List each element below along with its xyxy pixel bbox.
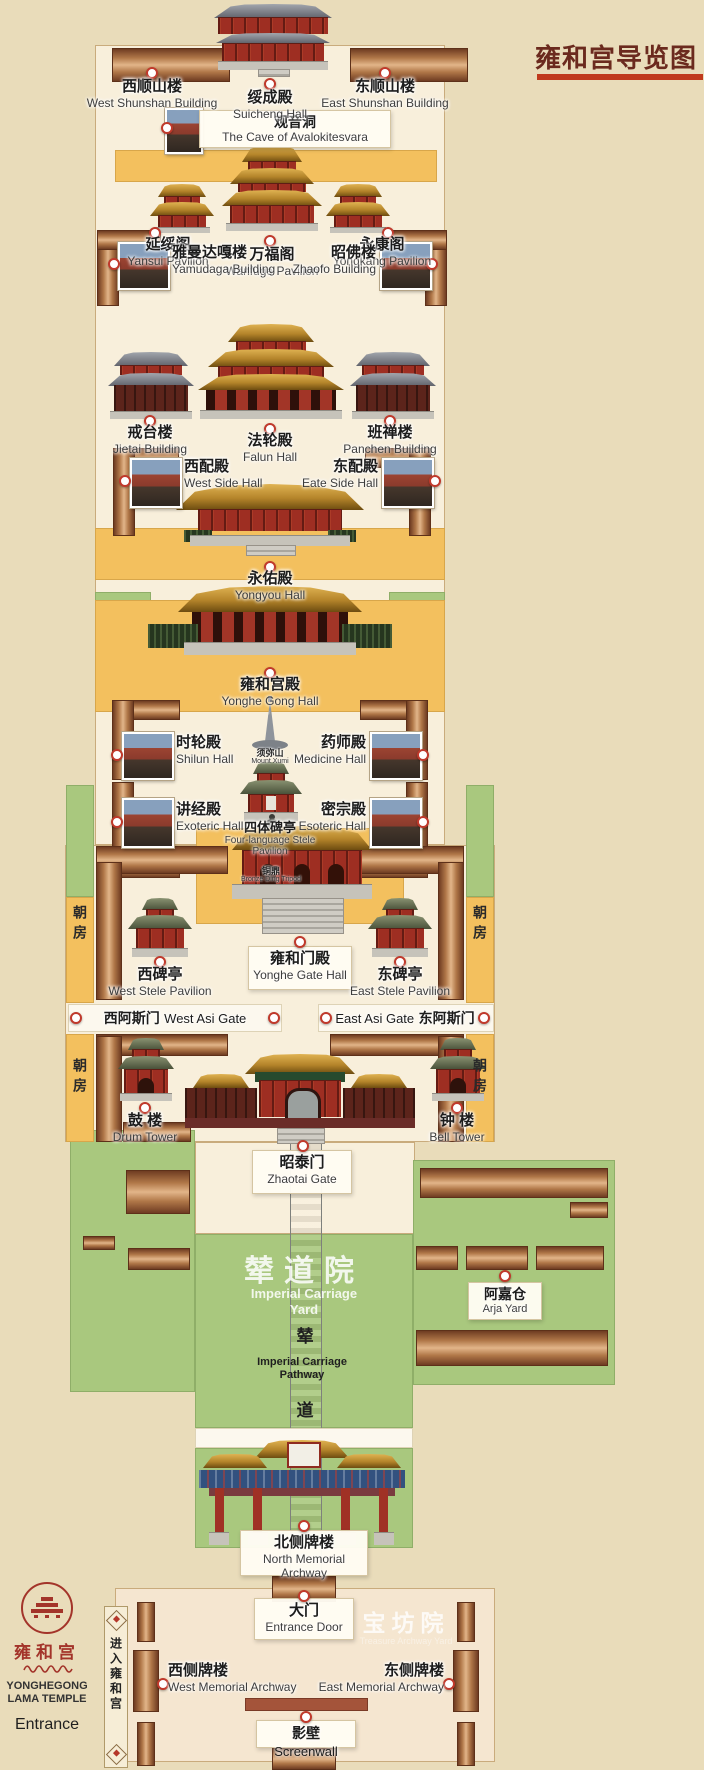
west-shunshan-roof — [112, 48, 230, 82]
location-marker — [443, 1678, 455, 1690]
north-archway-en: North Memorial Archway — [245, 1552, 363, 1580]
enter-banner-text: 进入雍和宫 — [108, 1637, 125, 1741]
label-east-stele: 东碑亭 East Stele Pavilion — [350, 966, 450, 998]
location-marker — [320, 1012, 332, 1024]
jietai-cn: 戒台楼 — [113, 424, 187, 442]
north-archway-label-box: 北侧牌楼 North Memorial Archway — [240, 1530, 368, 1576]
xumi-en: Mount Xumi — [251, 758, 288, 766]
yansui-pavilion-illustration — [150, 184, 214, 232]
screenwall-en: Screenwall — [274, 1744, 338, 1759]
location-marker — [298, 1520, 310, 1532]
east-side-cn: 东配殿 — [302, 458, 378, 476]
label-chaofang-se: 朝房 — [470, 1058, 490, 1098]
location-marker — [499, 1270, 511, 1282]
xumi-cn: 须弥山 — [251, 748, 288, 758]
label-west-stele: 西碑亭 West Stele Pavilion — [108, 966, 211, 998]
east-shunshan-en: East Shunshan Building — [321, 96, 448, 110]
yonghegong-en: Yonghe Gong Hall — [222, 694, 319, 708]
east-archway-pillar — [453, 1650, 479, 1712]
label-west-shunshan: 西顺山楼 West Shunshan Building — [87, 78, 218, 110]
lawn-strip-west — [66, 785, 94, 897]
label-suicheng: 绥成殿 Suicheng Hall — [233, 89, 307, 121]
drum-cn: 鼓 楼 — [113, 1112, 177, 1130]
yamudaga-cn: 雅曼达嘎楼 — [172, 244, 275, 262]
exoteric-hall-photo — [122, 798, 174, 848]
location-marker — [268, 1012, 280, 1024]
screenwall-cn: 影壁 — [292, 1725, 320, 1741]
yard-building-roof — [416, 1246, 458, 1270]
medicine-en: Medicine Hall — [294, 752, 366, 766]
tibetan-script-icon — [22, 1662, 74, 1674]
yongyou-en: Yongyou Hall — [235, 588, 305, 602]
location-marker — [119, 475, 131, 487]
bell-en: Bell Tower — [429, 1130, 484, 1144]
label-exoteric: 讲经殿 Exoteric Hall — [176, 801, 243, 833]
east-shunshan-roof — [350, 48, 468, 82]
east-shunshan-cn: 东顺山楼 — [321, 78, 448, 96]
carriage-yard-en2: Yard — [290, 1302, 318, 1317]
label-esoteric: 密宗殿 Esoteric Hall — [299, 801, 366, 833]
east-archway-pillar — [457, 1722, 475, 1766]
falun-hall-illustration — [198, 324, 344, 418]
arja-en: Arja Yard — [473, 1302, 537, 1316]
stele-pavilion-illustration — [240, 762, 302, 820]
east-archway-pillar — [457, 1602, 475, 1642]
west-stele-pavilion-illustration — [128, 898, 192, 958]
yard-building-roof — [126, 1170, 190, 1214]
yard-building-roof — [416, 1330, 608, 1366]
label-yamudaga: 雅曼达嘎楼 Yamudaga Building — [172, 244, 275, 276]
location-marker — [417, 749, 429, 761]
label-east-side-hall: 东配殿 Eate Side Hall — [302, 458, 378, 490]
west-shunshan-en: West Shunshan Building — [87, 96, 218, 110]
east-side-hall-photo — [382, 458, 434, 508]
temple-silhouette-icon — [28, 1595, 66, 1621]
west-asi-cn: 西阿斯门 — [104, 1010, 160, 1026]
temple-seal-icon — [21, 1582, 73, 1634]
ding-cn: 铜鼎 — [241, 866, 301, 876]
banner-diamond-icon — [106, 1610, 127, 1631]
yonghe-gate-en: Yonghe Gate Hall — [253, 968, 347, 982]
pathway-en2: Pathway — [257, 1369, 347, 1382]
zhaotai-gate-illustration — [185, 1054, 415, 1142]
logo-entrance: Entrance — [15, 1716, 79, 1734]
jietai-en: Jietai Building — [113, 442, 187, 456]
guanyin-en: The Cave of Avalokitesvara — [204, 130, 386, 144]
label-drum-tower: 鼓 楼 Drum Tower — [113, 1112, 177, 1144]
arja-label-box: 阿嘉仓 Arja Yard — [468, 1282, 542, 1320]
drum-en: Drum Tower — [113, 1130, 177, 1144]
west-side-cn: 西配殿 — [184, 458, 262, 476]
label-west-asi: 西阿斯门 West Asi Gate — [104, 1009, 247, 1028]
panchen-en: Panchen Building — [343, 442, 436, 456]
bell-cn: 钟 楼 — [429, 1112, 484, 1130]
jietai-building-illustration — [108, 352, 194, 418]
suicheng-en: Suicheng Hall — [233, 107, 307, 121]
medicine-hall-photo — [370, 732, 422, 780]
west-side-en: West Side Hall — [184, 476, 262, 490]
label-shilun: 时轮殿 Shilun Hall — [176, 734, 233, 766]
logo-name-en1: YONGHEGONG — [6, 1680, 87, 1693]
location-marker — [161, 122, 173, 134]
yonghegong-cn: 雍和宫殿 — [222, 676, 319, 694]
label-east-archway: 东侧牌楼 East Memorial Archway — [319, 1662, 444, 1694]
label-west-archway: 西侧牌楼 West Memorial Archway — [168, 1662, 296, 1694]
label-medicine: 药师殿 Medicine Hall — [294, 734, 366, 766]
label-yonghegong-hall: 雍和宫殿 Yonghe Gong Hall — [222, 676, 319, 708]
shilun-en: Shilun Hall — [176, 752, 233, 766]
east-asi-en: East Asi Gate — [335, 1011, 414, 1026]
west-side-hall-photo — [130, 458, 182, 508]
location-marker — [294, 936, 306, 948]
ding-en: Bronze Ding Tripod — [241, 876, 301, 884]
medicine-cn: 药师殿 — [294, 734, 366, 752]
east-archway-cn: 东侧牌楼 — [319, 1662, 444, 1680]
arja-cn: 阿嘉仓 — [473, 1286, 537, 1302]
east-archway-en: East Memorial Archway — [319, 1680, 444, 1694]
label-chaofang-sw: 朝房 — [70, 1058, 90, 1098]
zhaotai-cn: 昭泰门 — [257, 1154, 347, 1172]
location-marker — [417, 816, 429, 828]
west-stele-en: West Stele Pavilion — [108, 984, 211, 998]
east-asi-cn: 东阿斯门 — [419, 1010, 475, 1026]
falun-cn: 法轮殿 — [243, 432, 297, 450]
esoteric-cn: 密宗殿 — [299, 801, 366, 819]
yard-building-roof — [420, 1168, 608, 1198]
screenwall-bar — [245, 1698, 368, 1711]
logo-name-cn: 雍和宫 — [14, 1638, 80, 1663]
entrance-door-cn: 大门 — [259, 1602, 349, 1620]
label-zhaofo: 昭佛楼 Zhaofo Building — [293, 244, 376, 276]
label-west-side-hall: 西配殿 West Side Hall — [184, 458, 262, 490]
shilun-hall-photo — [122, 732, 174, 780]
zhaofo-cn: 昭佛楼 — [293, 244, 376, 262]
yard-building-roof — [570, 1202, 608, 1218]
entrance-door-en: Entrance Door — [259, 1620, 349, 1634]
pathway-cn2: 道 — [297, 1396, 314, 1421]
esoteric-hall-photo — [370, 798, 422, 848]
label-chaofang-nw: 朝房 — [70, 905, 90, 945]
west-shunshan-cn: 西顺山楼 — [87, 78, 218, 96]
enter-banner: 进入雍和宫 — [104, 1606, 128, 1768]
screenwall-label-box: 影壁 Screenwall — [256, 1720, 356, 1748]
location-marker — [300, 1711, 312, 1723]
label-jietai: 戒台楼 Jietai Building — [113, 424, 187, 456]
east-side-en: Eate Side Hall — [302, 476, 378, 490]
location-marker — [111, 749, 123, 761]
banner-diamond-icon — [106, 1744, 127, 1765]
yamudaga-en: Yamudaga Building — [172, 262, 275, 276]
yard-building-roof — [536, 1246, 604, 1270]
panchen-building-illustration — [350, 352, 436, 418]
entrance-door-label-box: 大门 Entrance Door — [254, 1598, 354, 1640]
carriage-yard-cn: 辇道院 — [244, 1246, 364, 1290]
carriage-yard-en1: Imperial Carriage — [251, 1286, 357, 1301]
zhaotai-en: Zhaotai Gate — [257, 1172, 347, 1186]
location-marker — [108, 258, 120, 270]
east-stele-cn: 东碑亭 — [350, 966, 450, 984]
location-marker — [429, 475, 441, 487]
yard-building-roof — [466, 1246, 528, 1270]
logo-name-en2: LAMA TEMPLE — [7, 1693, 86, 1706]
west-asi-en: West Asi Gate — [164, 1011, 246, 1026]
east-stele-en: East Stele Pavilion — [350, 984, 450, 998]
stele-pavilion-en: Four-language Stele — [225, 835, 316, 846]
label-east-asi: East Asi Gate 东阿斯门 — [335, 1009, 474, 1028]
west-archway-pillar — [137, 1722, 155, 1766]
yongkang-pavilion-illustration — [326, 184, 390, 232]
north-archway-cn: 北侧牌楼 — [245, 1534, 363, 1552]
west-archway-pillar — [137, 1602, 155, 1642]
label-chaofang-ne: 朝房 — [470, 905, 490, 945]
location-marker — [297, 1140, 309, 1152]
zhaofo-en: Zhaofo Building — [293, 262, 376, 276]
location-marker — [298, 1590, 310, 1602]
suicheng-hall-illustration — [218, 4, 328, 76]
panchen-cn: 班禅楼 — [343, 424, 436, 442]
west-archway-cn: 西侧牌楼 — [168, 1662, 296, 1680]
pathway-en1: Imperial Carriage — [257, 1356, 347, 1369]
map-title: 雍和宫导览图 — [528, 38, 704, 75]
title-underline — [537, 74, 703, 80]
yonghe-gate-label-box: 雍和门殿 Yonghe Gate Hall — [248, 946, 352, 990]
yonghe-gate-cn: 雍和门殿 — [253, 950, 347, 968]
label-bronze-ding: 铜鼎 Bronze Ding Tripod — [241, 866, 301, 884]
shilun-cn: 时轮殿 — [176, 734, 233, 752]
exoteric-en: Exoteric Hall — [176, 819, 243, 833]
esoteric-en: Esoteric Hall — [299, 819, 366, 833]
label-east-shunshan: 东顺山楼 East Shunshan Building — [321, 78, 448, 110]
label-panchen: 班禅楼 Panchen Building — [343, 424, 436, 456]
location-marker — [70, 1012, 82, 1024]
stele-pavilion-en2: Pavilion — [225, 846, 316, 857]
label-mount-xumi: 须弥山 Mount Xumi — [251, 748, 288, 766]
label-yongyou: 永佑殿 Yongyou Hall — [235, 570, 305, 602]
baofang-yard-en: Treasure Archway Yard — [360, 1636, 453, 1646]
label-bell-tower: 钟 楼 Bell Tower — [429, 1112, 484, 1144]
west-archway-en: West Memorial Archway — [168, 1680, 296, 1694]
pathway-cn1: 辇 — [297, 1322, 314, 1347]
west-stele-cn: 西碑亭 — [108, 966, 211, 984]
location-marker — [478, 1012, 490, 1024]
wanfuge-pavilion-illustration — [222, 146, 322, 230]
baofang-yard-cn: 宝坊院 — [363, 1604, 450, 1638]
suicheng-cn: 绥成殿 — [233, 89, 307, 107]
yonghegong-guide-map: 雍和宫导览图 — [0, 0, 704, 1770]
yongyou-hall-illustration — [176, 484, 364, 558]
west-archway-pillar — [133, 1650, 159, 1712]
zhaotai-label-box: 昭泰门 Zhaotai Gate — [252, 1150, 352, 1194]
exoteric-cn: 讲经殿 — [176, 801, 243, 819]
east-stele-pavilion-illustration — [368, 898, 432, 958]
lawn-strip-east — [466, 785, 494, 897]
location-marker — [111, 816, 123, 828]
label-pathway-en: Imperial Carriage Pathway — [257, 1356, 347, 1382]
yard-building-roof — [83, 1236, 115, 1250]
yongyou-cn: 永佑殿 — [235, 570, 305, 588]
yard-building-roof — [128, 1248, 190, 1270]
drum-tower-illustration — [118, 1038, 174, 1102]
